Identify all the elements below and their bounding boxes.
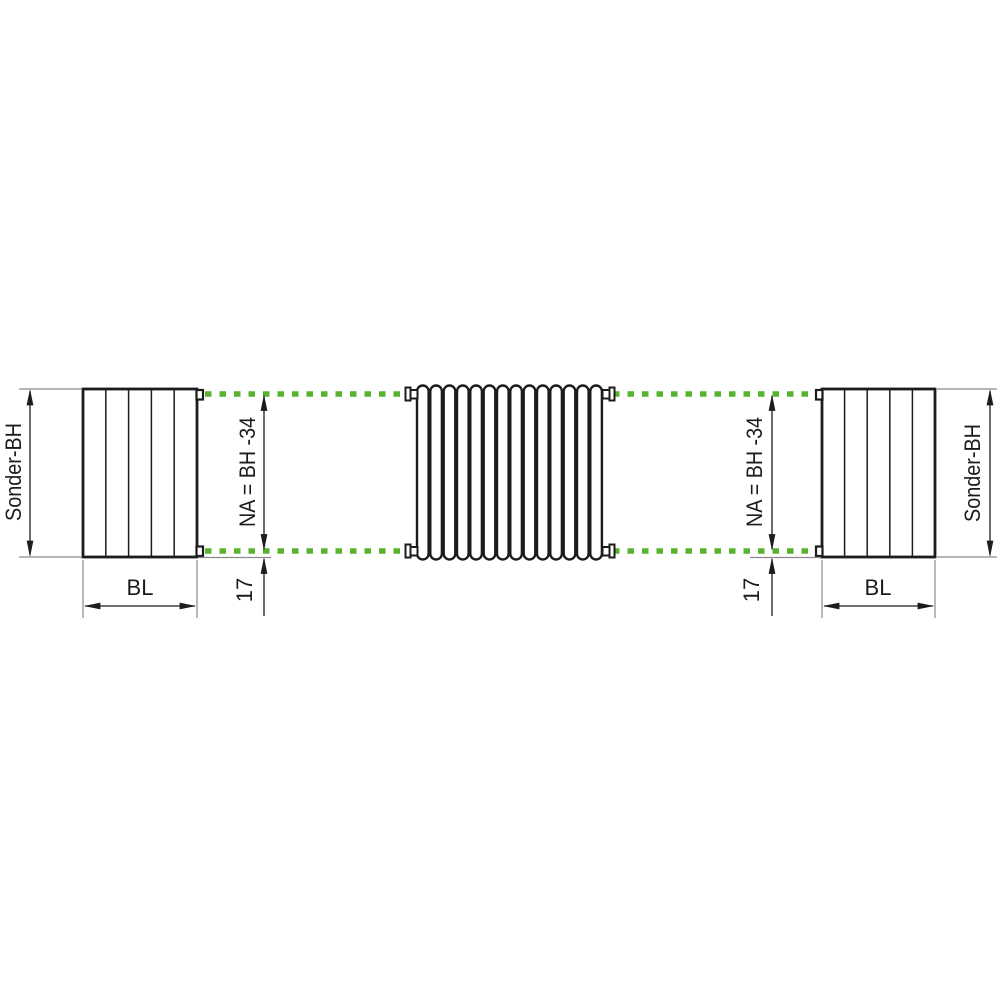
radiator-tube	[444, 386, 456, 560]
radiator-tube	[550, 386, 562, 560]
arrowhead-right	[918, 603, 934, 610]
arrowhead-right	[180, 603, 196, 610]
dim-sonder-bh-left: Sonder-BH	[1, 389, 82, 557]
arrowhead-up	[261, 395, 268, 411]
radiator-tube	[417, 386, 429, 560]
dim-label-17-right: 17	[739, 578, 764, 602]
dim-label-sonder-bh-left: Sonder-BH	[1, 423, 26, 521]
dim-bl-left: BL	[83, 560, 197, 618]
dim-bl-right: BL	[822, 560, 935, 618]
arrowhead-down	[261, 534, 268, 550]
arrowhead-up	[769, 558, 776, 574]
arrowhead-down	[769, 534, 776, 550]
side-view-right	[816, 389, 935, 557]
dim-na-right: NA = BH -34	[742, 395, 775, 551]
dim-label-bl-right: BL	[865, 575, 892, 600]
radiator-connector-top-right	[603, 388, 615, 401]
arrowhead-up	[27, 389, 34, 405]
radiator-tube	[577, 386, 589, 560]
arrowhead-up	[261, 558, 268, 574]
radiator-tube	[470, 386, 482, 560]
side-view-right-top-stub	[816, 390, 823, 400]
dim-offset-17-right: 17	[739, 558, 821, 617]
arrowhead-down	[987, 541, 994, 557]
radiator-tube	[484, 386, 496, 560]
radiator-dimension-drawing: Sonder-BH BL NA = BH -34 17 NA = BH -34	[0, 0, 1000, 1000]
radiator-tube	[497, 386, 509, 560]
arrowhead-left	[823, 603, 839, 610]
side-view-left-body	[83, 389, 197, 557]
dim-label-bl-left: BL	[127, 575, 154, 600]
radiator-tube	[430, 386, 442, 560]
side-view-left	[83, 389, 203, 557]
dim-label-na-left: NA = BH -34	[235, 417, 260, 527]
radiator-tube	[590, 386, 602, 560]
side-view-right-body	[822, 389, 935, 557]
radiator-connector-top-left	[406, 388, 418, 401]
drawing-canvas: Sonder-BH BL NA = BH -34 17 NA = BH -34	[0, 0, 1000, 1000]
radiator-tube	[564, 386, 576, 560]
dim-na-left: NA = BH -34	[235, 395, 267, 551]
dim-offset-17-left: 17	[198, 558, 271, 617]
radiator-connector-bottom-right	[603, 545, 615, 558]
radiator-tube	[537, 386, 549, 560]
radiator-tube	[510, 386, 522, 560]
side-view-left-top-stub	[197, 390, 204, 400]
arrowhead-left	[84, 603, 100, 610]
side-view-left-bottom-stub	[197, 547, 204, 557]
dim-sonder-bh-right: Sonder-BH	[937, 389, 997, 557]
dim-label-17-left: 17	[232, 578, 257, 602]
front-view-radiator	[406, 386, 615, 560]
side-view-right-bottom-stub	[816, 547, 823, 557]
arrowhead-up	[769, 395, 776, 411]
radiator-connector-bottom-left	[406, 545, 418, 558]
dim-label-sonder-bh-right: Sonder-BH	[960, 424, 985, 522]
arrowhead-up	[987, 389, 994, 405]
radiator-tube	[524, 386, 536, 560]
dim-label-na-right: NA = BH -34	[742, 417, 767, 527]
radiator-tube	[457, 386, 469, 560]
arrowhead-down	[27, 541, 34, 557]
